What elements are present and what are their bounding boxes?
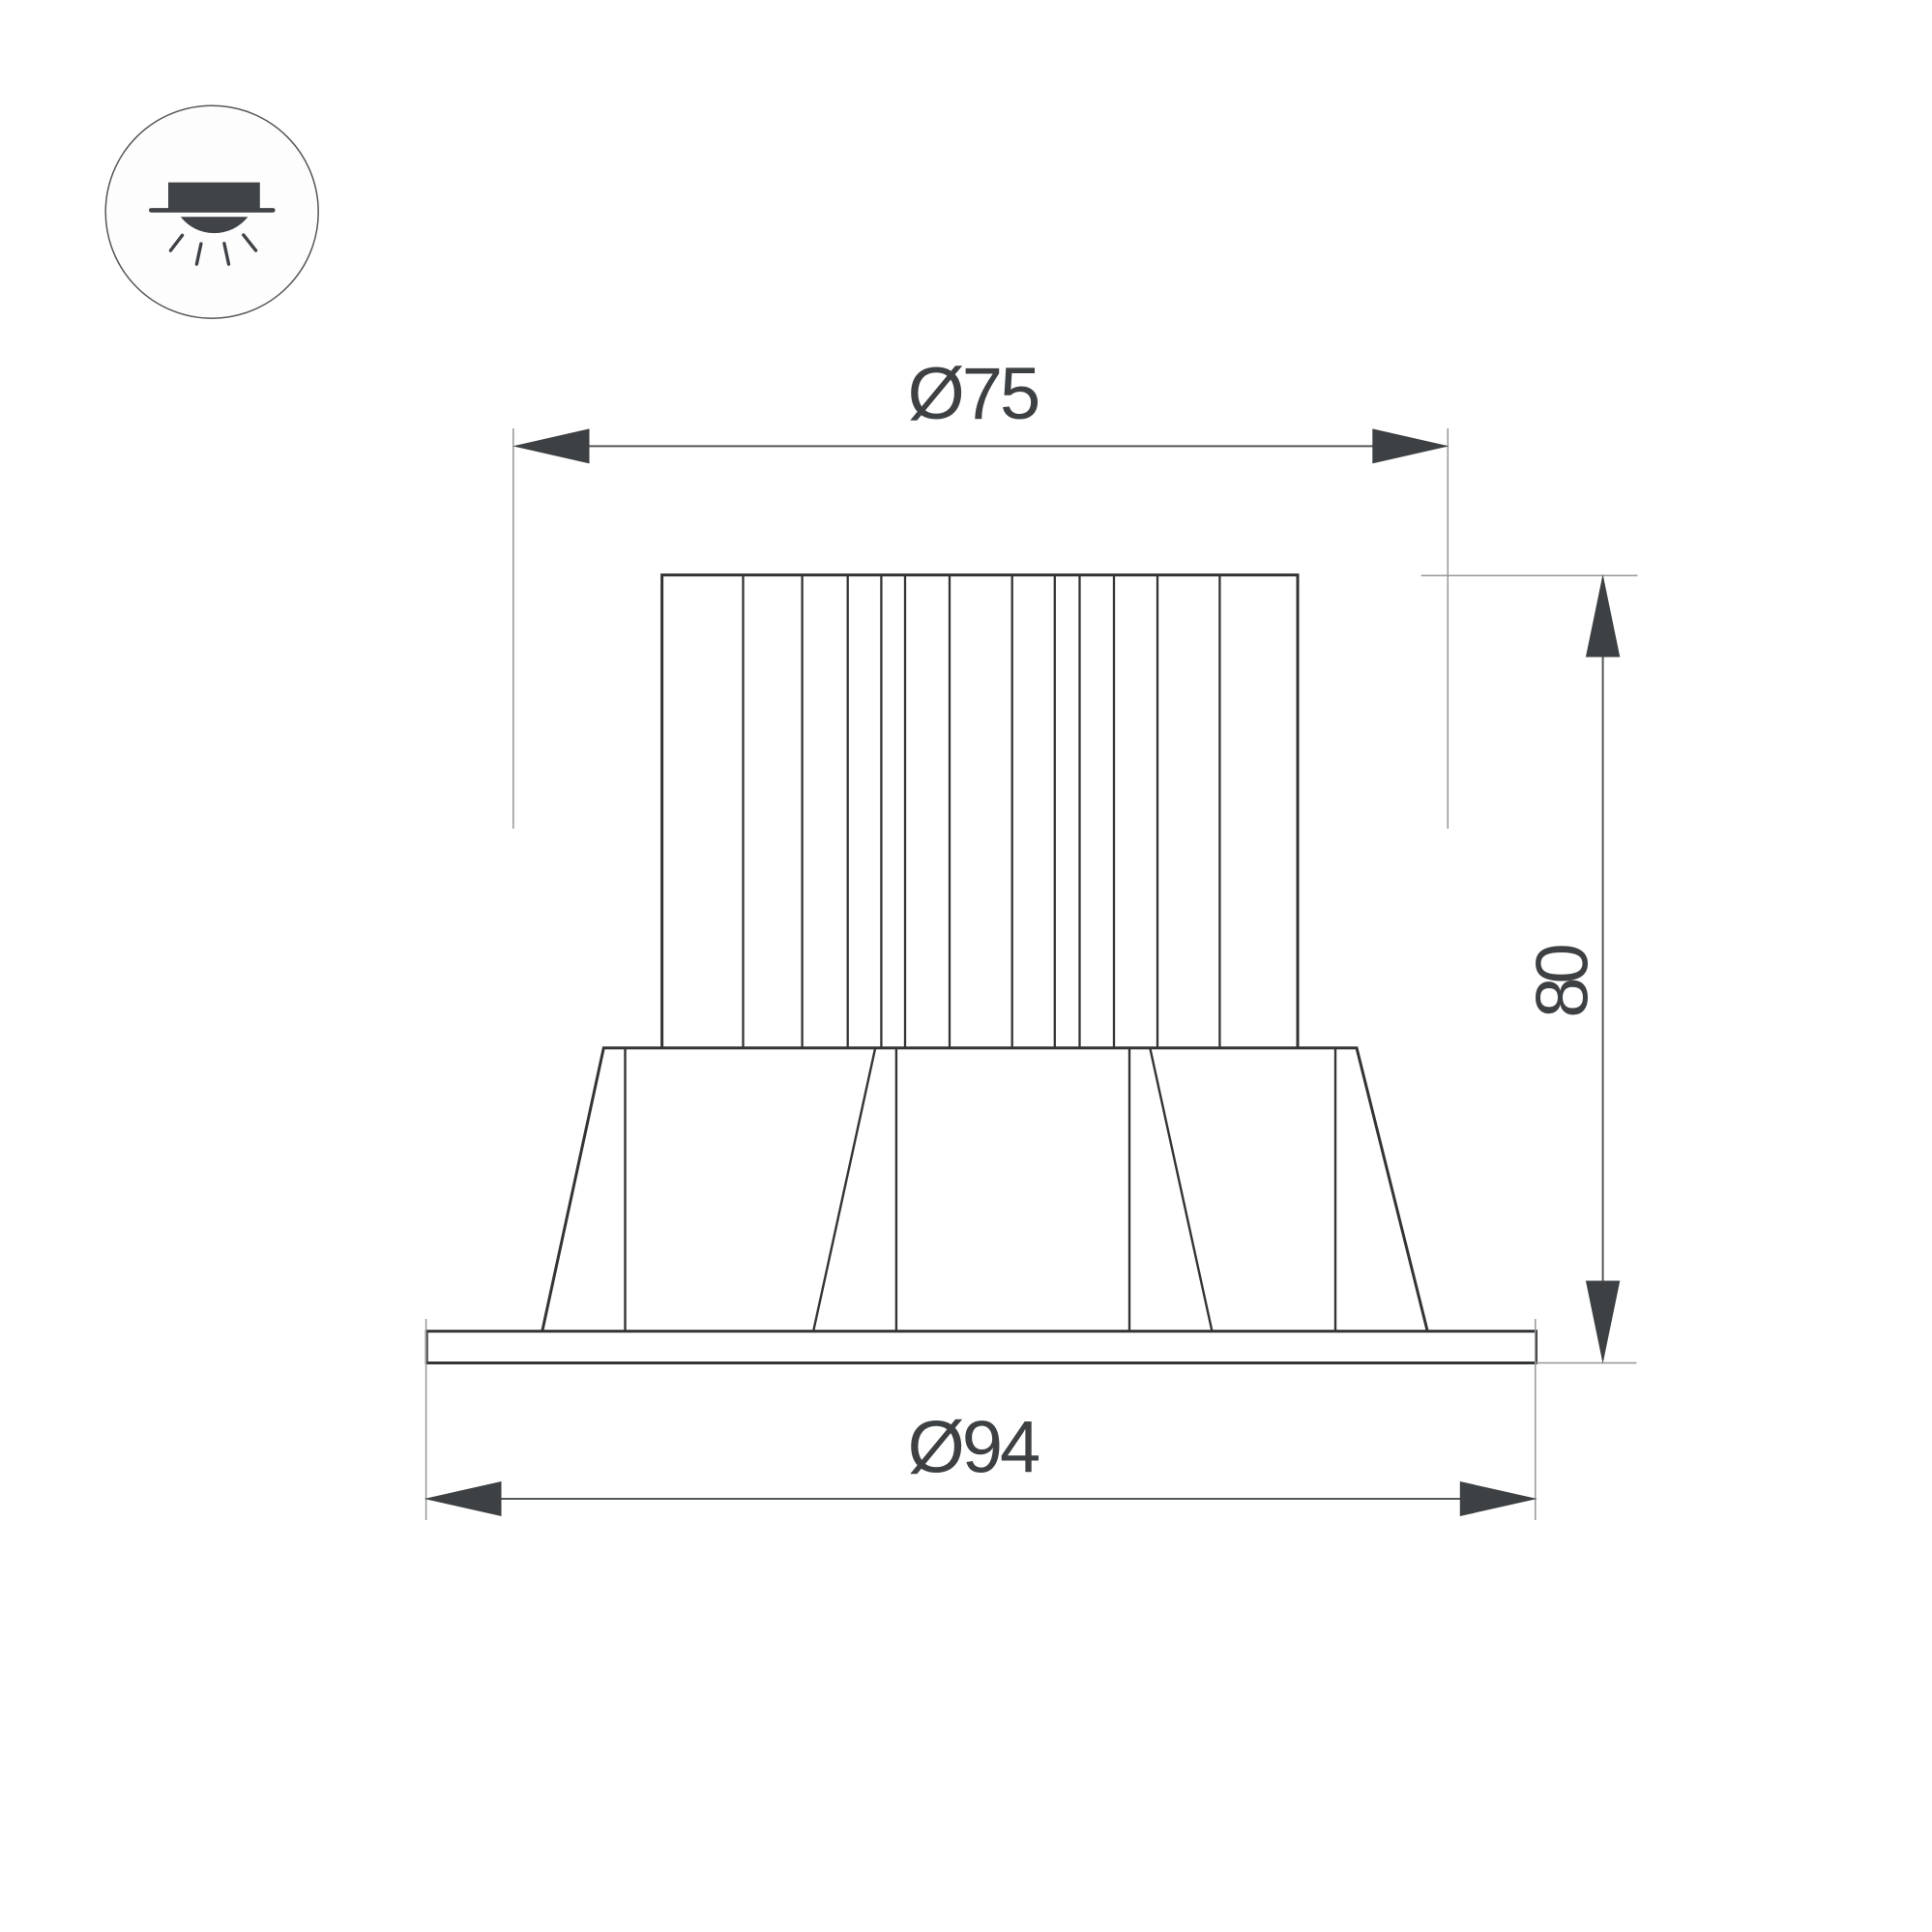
svg-text:80: 80	[1522, 946, 1604, 1018]
svg-text:Ø94: Ø94	[908, 1407, 1039, 1489]
svg-text:Ø75: Ø75	[908, 353, 1039, 435]
